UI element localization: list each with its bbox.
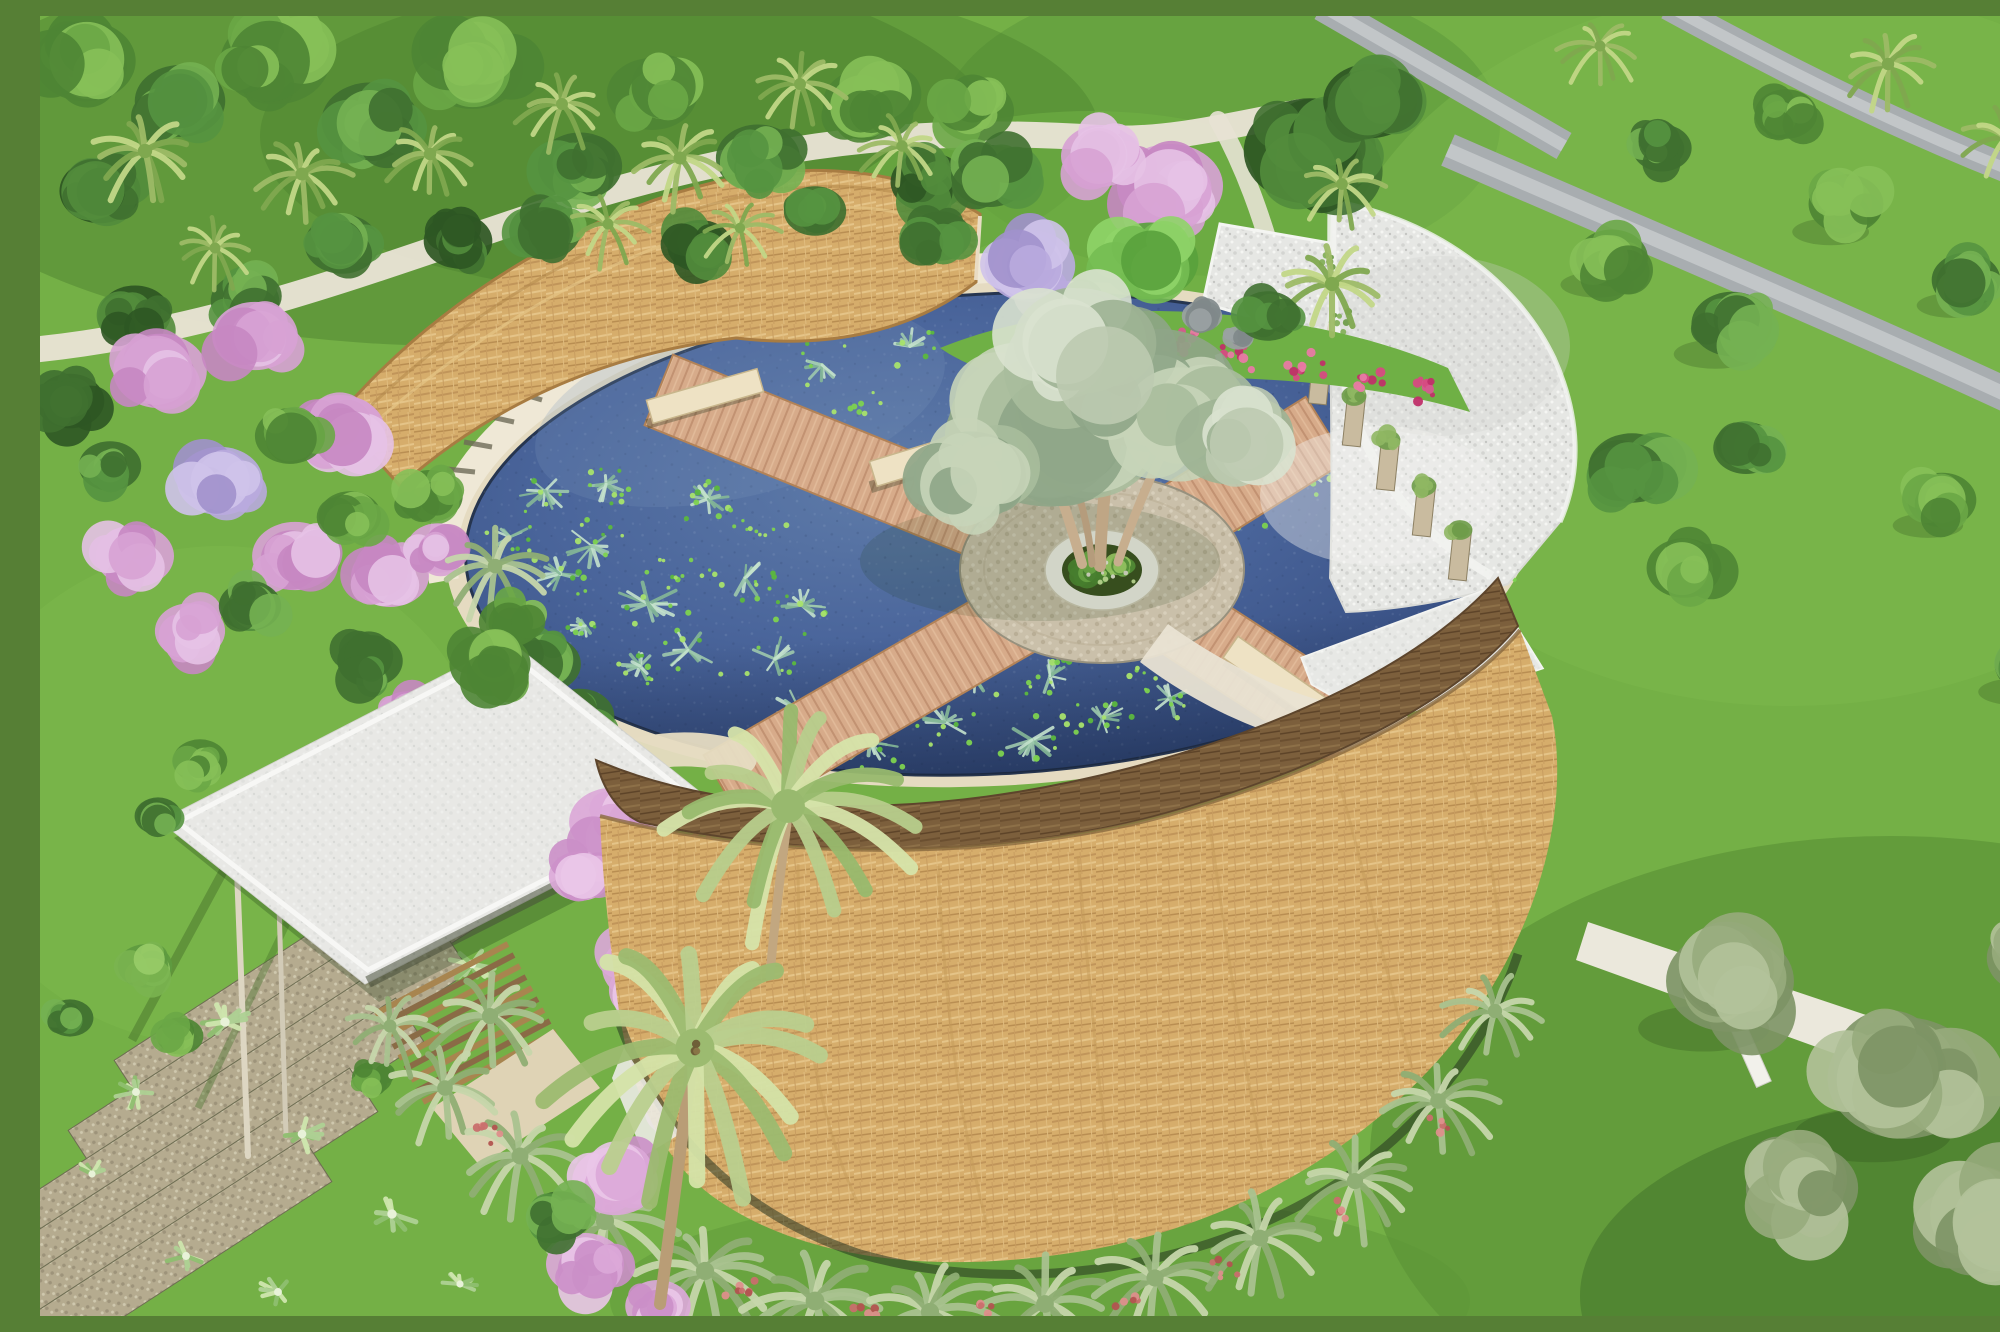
aerial-resort-rendering: Aerial 3D rendering of a resort garden: … xyxy=(40,16,2000,1316)
rendered-scene xyxy=(40,16,2000,1316)
